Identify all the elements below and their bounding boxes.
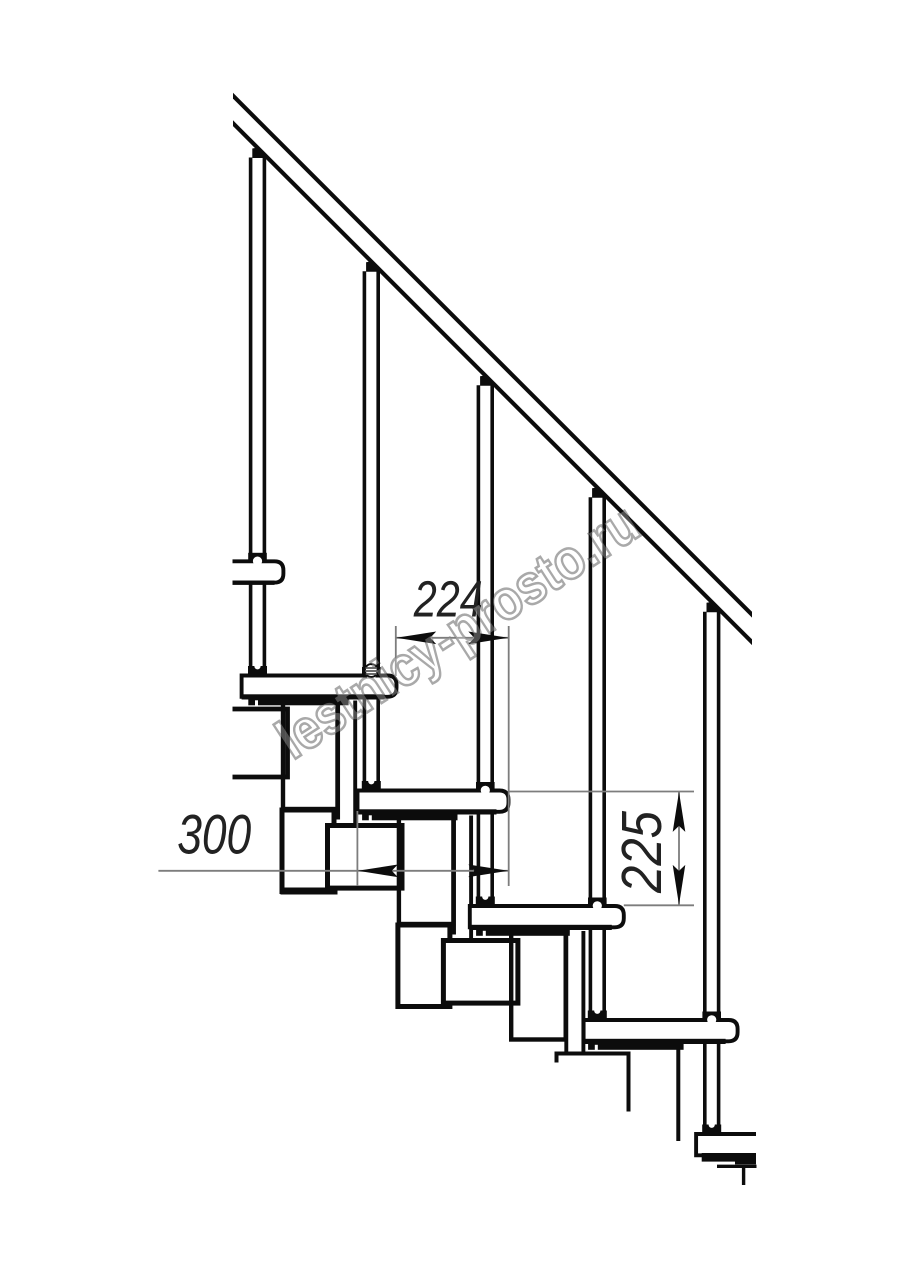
svg-text:300: 300 <box>177 803 251 866</box>
svg-text:lestnicy-prosto.ru: lestnicy-prosto.ru <box>265 491 650 771</box>
svg-text:225: 225 <box>610 811 674 894</box>
